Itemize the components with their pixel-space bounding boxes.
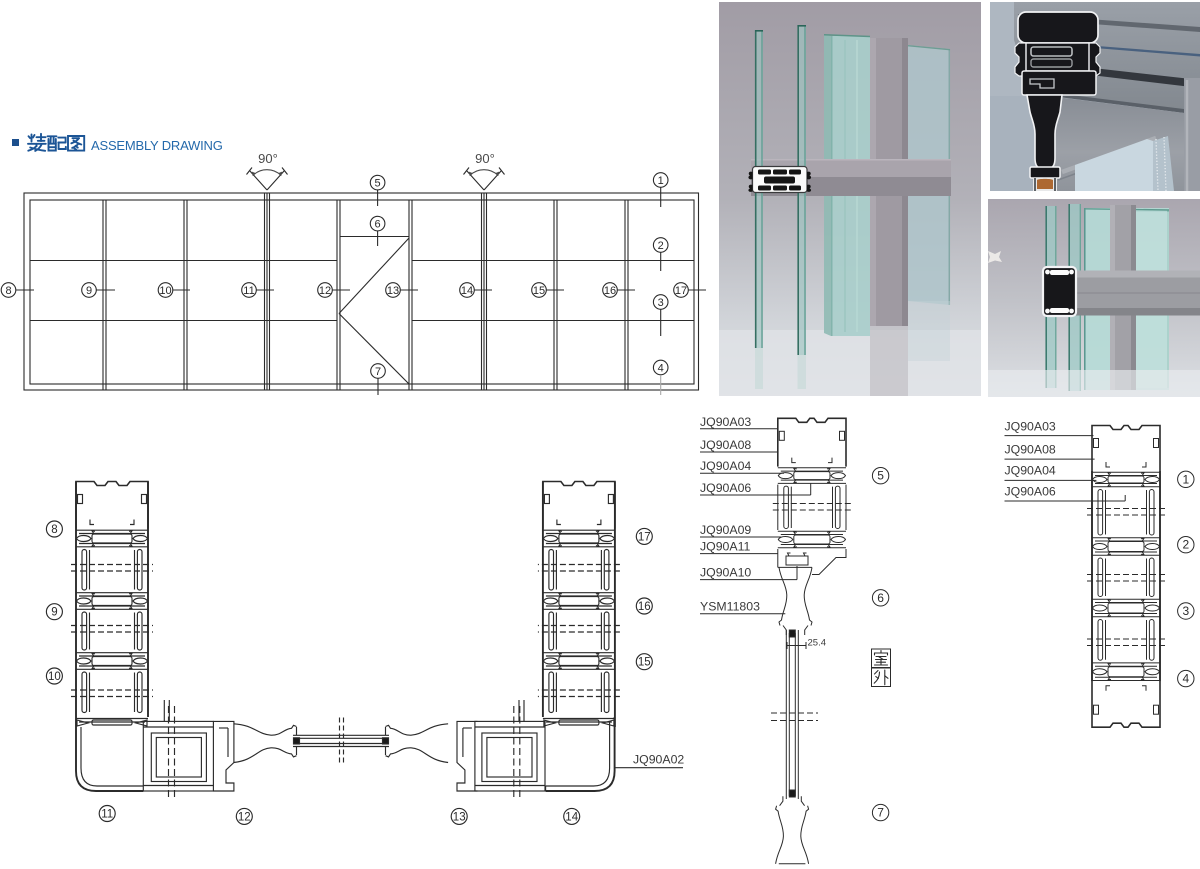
svg-text:JQ90A04: JQ90A04 — [700, 459, 751, 473]
svg-text:13: 13 — [453, 811, 466, 823]
svg-text:6: 6 — [375, 219, 381, 231]
svg-text:11: 11 — [243, 285, 254, 297]
svg-text:90°: 90° — [475, 151, 495, 166]
svg-text:8: 8 — [5, 285, 11, 297]
svg-text:16: 16 — [604, 285, 616, 297]
svg-text:25.4: 25.4 — [808, 638, 827, 649]
svg-text:JQ90A03: JQ90A03 — [1005, 420, 1056, 434]
svg-text:9: 9 — [51, 607, 57, 619]
svg-text:2: 2 — [1182, 538, 1189, 552]
svg-text:90°: 90° — [258, 151, 278, 166]
svg-text:8: 8 — [51, 524, 57, 536]
svg-text:2: 2 — [658, 240, 664, 252]
svg-text:14: 14 — [461, 285, 473, 297]
svg-text:14: 14 — [565, 811, 578, 823]
svg-text:JQ90A08: JQ90A08 — [700, 438, 751, 452]
svg-text:JQ90A06: JQ90A06 — [700, 481, 751, 495]
svg-text:3: 3 — [1182, 604, 1189, 618]
svg-text:4: 4 — [1182, 672, 1189, 686]
svg-text:3: 3 — [658, 297, 664, 309]
svg-text:7: 7 — [877, 806, 884, 820]
svg-text:JQ90A09: JQ90A09 — [700, 523, 751, 537]
svg-text:6: 6 — [877, 591, 884, 605]
svg-text:1: 1 — [658, 175, 664, 187]
svg-text:JQ90A03: JQ90A03 — [700, 415, 751, 429]
svg-text:4: 4 — [658, 362, 664, 374]
svg-text:15: 15 — [533, 285, 545, 297]
svg-text:10: 10 — [48, 671, 61, 683]
svg-text:12: 12 — [319, 285, 331, 297]
svg-text:5: 5 — [375, 178, 381, 190]
svg-text:10: 10 — [159, 285, 171, 297]
svg-text:16: 16 — [638, 601, 651, 613]
svg-text:11: 11 — [101, 809, 113, 821]
svg-text:JQ90A02: JQ90A02 — [633, 753, 684, 767]
svg-text:12: 12 — [238, 811, 251, 823]
svg-text:7: 7 — [375, 366, 381, 378]
svg-text:JQ90A11: JQ90A11 — [700, 539, 751, 553]
svg-text:17: 17 — [675, 285, 687, 297]
svg-text:9: 9 — [86, 285, 92, 297]
svg-text:15: 15 — [638, 657, 651, 669]
svg-text:JQ90A06: JQ90A06 — [1005, 485, 1056, 499]
svg-text:17: 17 — [638, 531, 651, 543]
svg-text:5: 5 — [877, 469, 884, 483]
svg-text:YSM11803: YSM11803 — [700, 600, 760, 614]
svg-text:13: 13 — [387, 285, 399, 297]
svg-text:ASSEMBLY DRAWING: ASSEMBLY DRAWING — [91, 138, 223, 153]
svg-text:1: 1 — [1182, 472, 1189, 486]
svg-text:JQ90A10: JQ90A10 — [700, 565, 751, 579]
svg-text:JQ90A04: JQ90A04 — [1005, 464, 1056, 478]
svg-text:JQ90A08: JQ90A08 — [1005, 443, 1056, 457]
